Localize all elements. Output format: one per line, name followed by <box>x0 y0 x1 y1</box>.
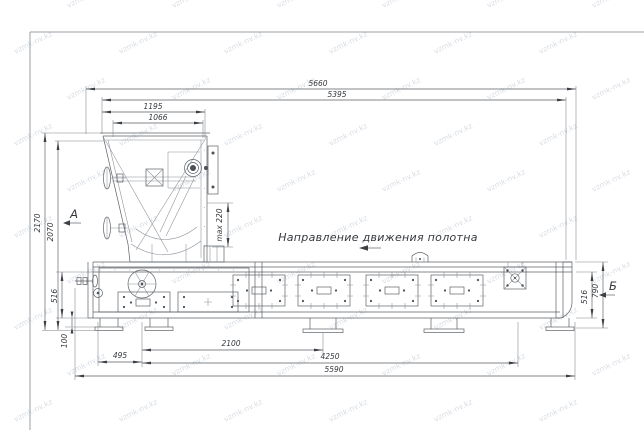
handwheel-lower <box>104 217 129 239</box>
dim-5660-label: 5660 <box>308 79 327 88</box>
dim-5590-label: 5590 <box>324 365 343 374</box>
dim-516-left: 516 <box>50 272 62 318</box>
drive-section <box>99 262 262 318</box>
dim-516-right-label: 516 <box>580 290 589 305</box>
view-a-arrow-icon <box>63 220 70 225</box>
belt-direction-note: Направление движения полотна <box>278 231 478 251</box>
dim-1066-label: 1066 <box>148 113 167 122</box>
belt-direction-text: Направление движения полотна <box>278 231 478 244</box>
dim-4250-label: 4250 <box>320 352 339 361</box>
dim-5395: 5395 <box>102 90 566 100</box>
dim-2170: 2170 <box>33 133 45 330</box>
dim-790-label: 790 <box>591 284 600 299</box>
dim-5660: 5660 <box>86 79 576 89</box>
view-b-label: Б <box>609 279 617 293</box>
dim-2100-label: 2100 <box>221 339 240 348</box>
end-bearing-plate <box>504 262 526 289</box>
dim-5590: 5590 <box>75 365 575 376</box>
mixer-gearbox <box>146 169 163 186</box>
tensioner-screw <box>75 275 103 298</box>
dim-2100: 2100 <box>142 339 323 350</box>
conveyor-unit <box>75 246 574 333</box>
dimensions: 5660 5395 1195 1066 max 220 2170 <box>33 79 603 376</box>
conveyor-right-end <box>556 262 572 318</box>
view-b-marker: Б <box>599 279 617 298</box>
dim-100-label: 100 <box>60 334 69 349</box>
dim-1066: 1066 <box>113 113 203 123</box>
dim-495-label: 495 <box>113 351 128 360</box>
mixer-unit <box>100 133 218 262</box>
dim-495: 495 <box>98 351 142 362</box>
dim-1195: 1195 <box>102 102 205 112</box>
dim-1195-label: 1195 <box>143 102 162 111</box>
supports <box>95 318 574 333</box>
drawing-sheet: vzmk-nv.kzvzmk-nv.kzvzmk-nv.kzvzmk-nv.kz… <box>0 0 644 430</box>
side-flange <box>208 146 218 194</box>
view-a-label: А <box>69 207 78 221</box>
dim-4250: 4250 <box>142 352 518 363</box>
inspection-panels <box>230 272 486 309</box>
dim-2070-label: 2070 <box>46 222 55 241</box>
dim-max220-label: max 220 <box>215 208 224 241</box>
dim-516-left-label: 516 <box>50 289 59 304</box>
view-b-arrow-icon <box>599 292 606 297</box>
view-a-marker: А <box>63 207 81 226</box>
technical-drawing: 5660 5395 1195 1066 max 220 2170 <box>0 0 644 430</box>
belt-direction-arrow-icon <box>359 245 368 250</box>
bearing-pedestal <box>412 253 428 263</box>
dim-max220: max 220 <box>215 203 228 247</box>
dim-2170-label: 2170 <box>33 213 42 232</box>
dim-5395-label: 5395 <box>327 90 346 99</box>
